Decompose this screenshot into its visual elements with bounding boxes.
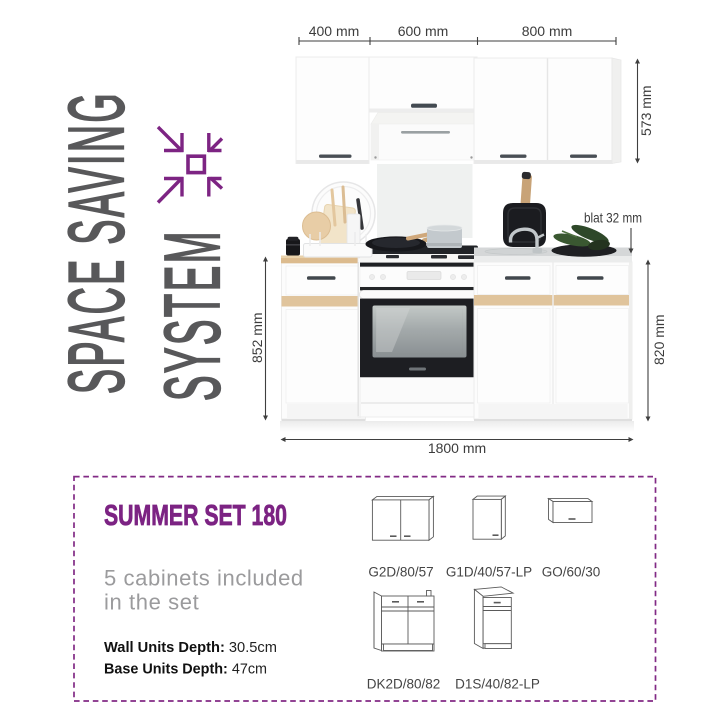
svg-text:800 mm: 800 mm bbox=[522, 23, 573, 39]
svg-text:400 mm: 400 mm bbox=[309, 23, 360, 39]
svg-text:D1S/40/82-LP: D1S/40/82-LP bbox=[455, 677, 540, 692]
svg-text:852 mm: 852 mm bbox=[249, 312, 265, 363]
svg-text:5 cabinets included: 5 cabinets included bbox=[104, 566, 304, 591]
svg-text:SUMMER SET 180: SUMMER SET 180 bbox=[104, 500, 287, 532]
svg-text:820 mm: 820 mm bbox=[651, 314, 667, 365]
svg-text:SYSTEM: SYSTEM bbox=[148, 229, 236, 401]
svg-text:G1D/40/57-LP: G1D/40/57-LP bbox=[446, 565, 532, 580]
svg-text:Base Units Depth: 47cm: Base Units Depth: 47cm bbox=[104, 662, 267, 678]
svg-text:Wall Units Depth: 30.5cm: Wall Units Depth: 30.5cm bbox=[104, 640, 277, 656]
svg-text:in the set: in the set bbox=[104, 590, 199, 615]
svg-text:G2D/80/57: G2D/80/57 bbox=[368, 565, 433, 580]
svg-text:GO/60/30: GO/60/30 bbox=[542, 565, 601, 580]
svg-text:SPACE SAVING: SPACE SAVING bbox=[52, 91, 140, 394]
svg-text:600 mm: 600 mm bbox=[398, 23, 449, 39]
svg-text:1800 mm: 1800 mm bbox=[428, 440, 486, 456]
svg-text:573 mm: 573 mm bbox=[638, 85, 654, 136]
svg-text:DK2D/80/82: DK2D/80/82 bbox=[367, 677, 441, 692]
svg-text:blat 32 mm: blat 32 mm bbox=[584, 210, 642, 226]
